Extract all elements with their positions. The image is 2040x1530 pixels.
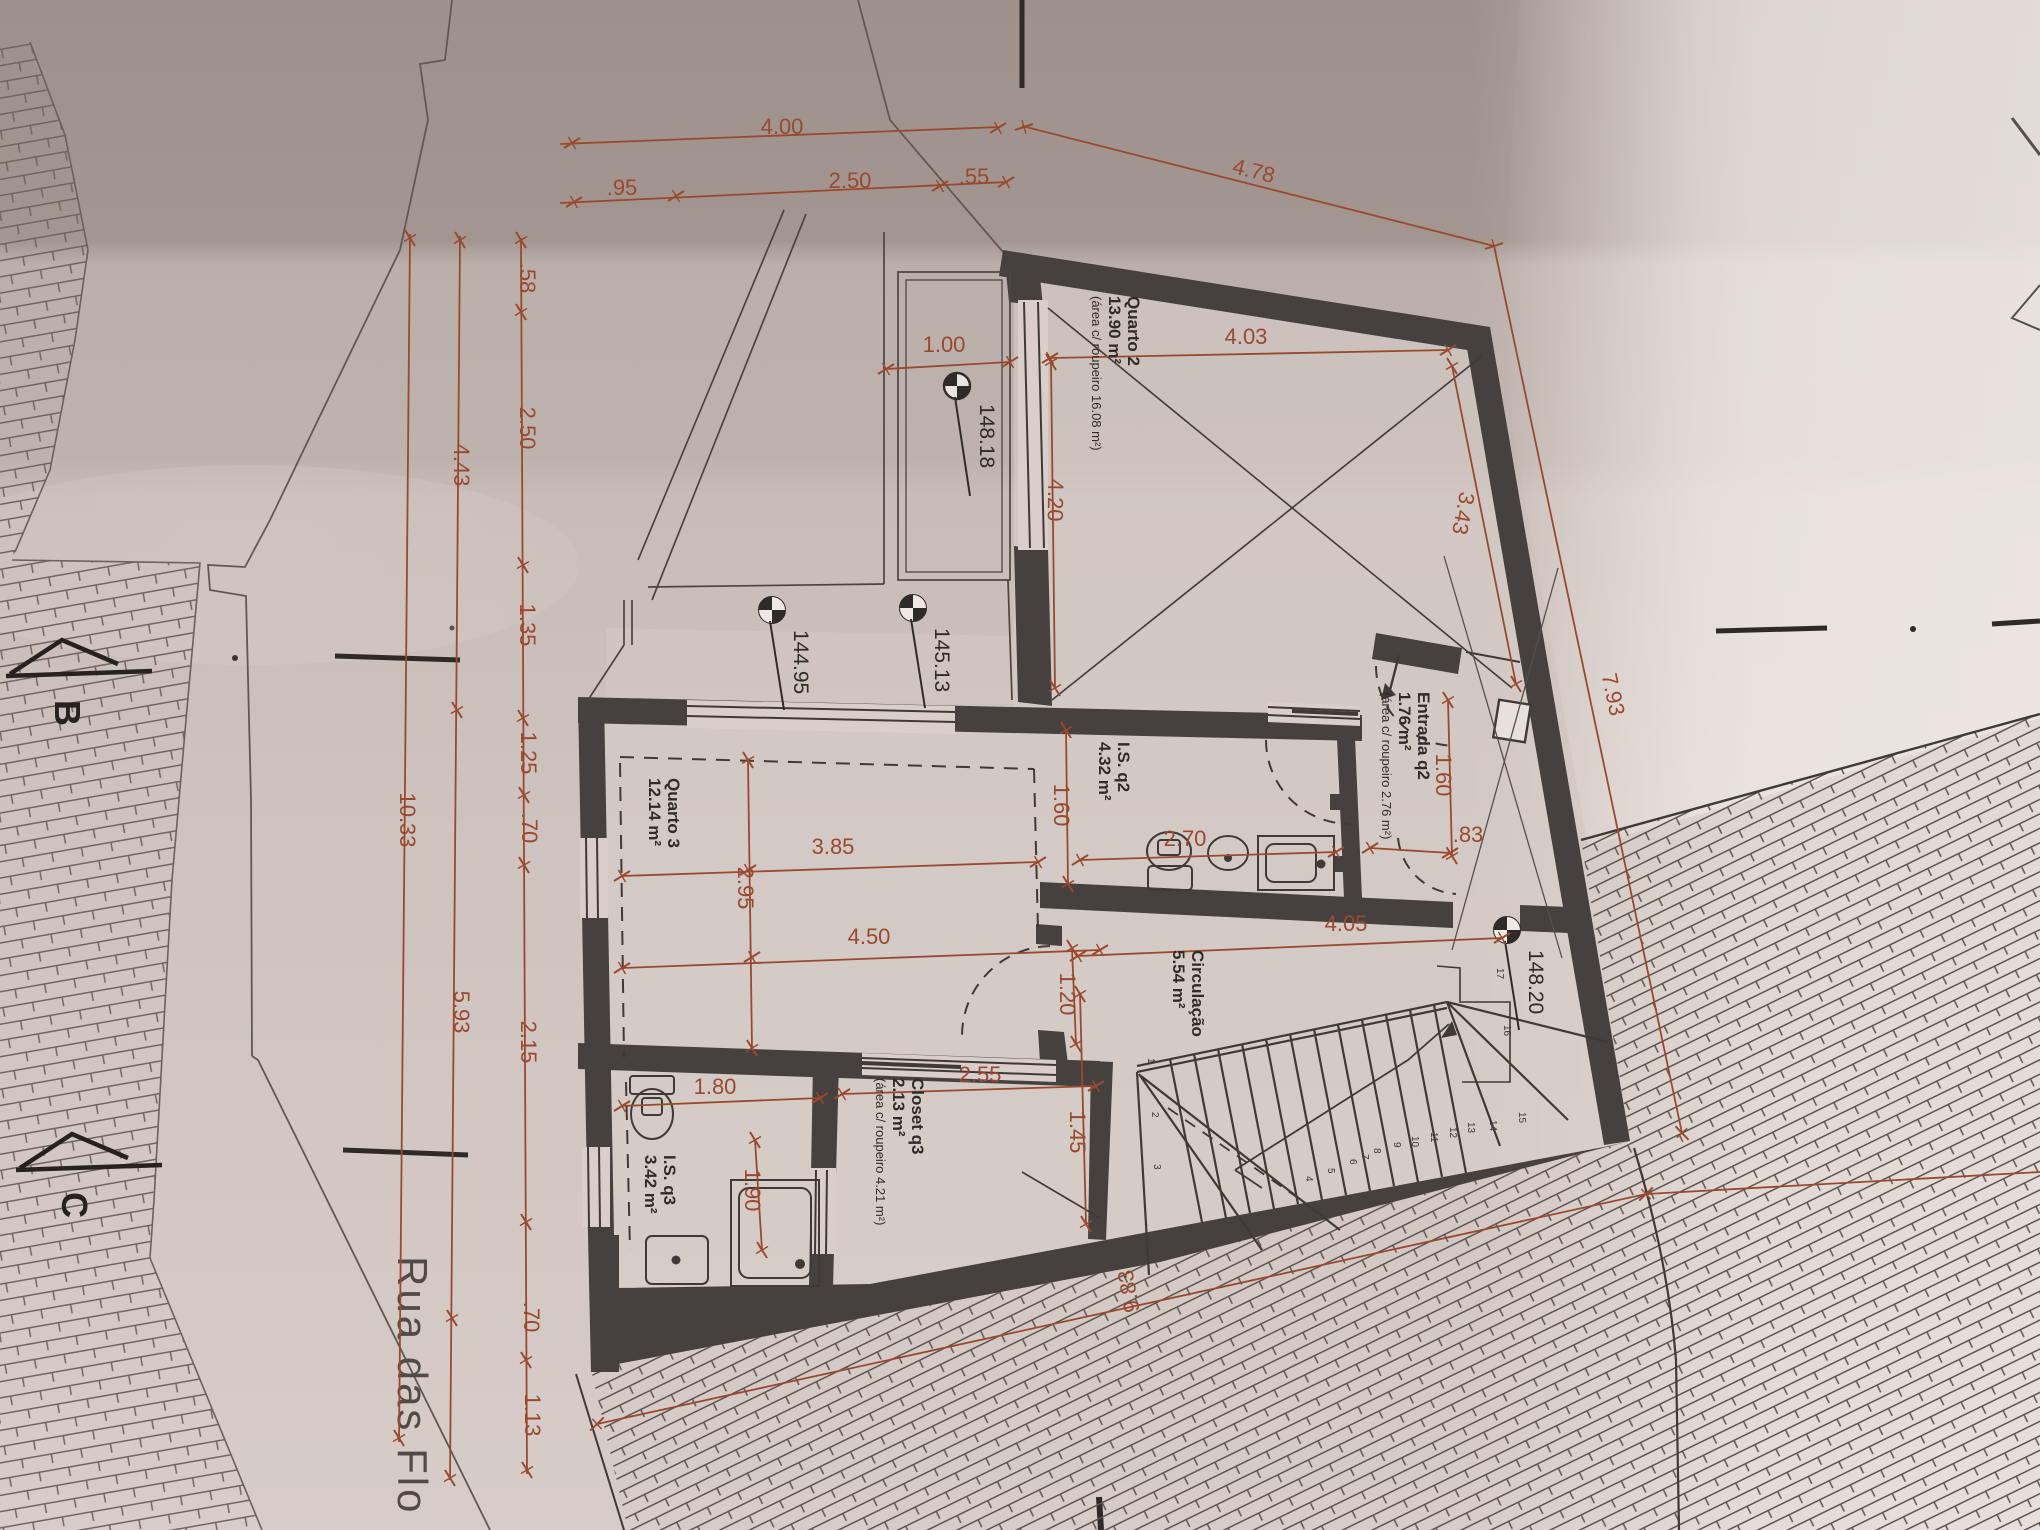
svg-text:2.70: 2.70 [1164,826,1207,851]
svg-text:4.20: 4.20 [1043,479,1069,522]
svg-text:.55: .55 [959,164,990,189]
svg-text:4: 4 [1303,1176,1314,1182]
svg-text:.95: .95 [607,175,638,200]
svg-text:1: 1 [1145,1058,1156,1064]
svg-text:148.18: 148.18 [975,404,998,468]
svg-text:2: 2 [1149,1112,1160,1118]
svg-text:2.95: 2.95 [733,867,758,910]
svg-text:6: 6 [1347,1159,1358,1165]
svg-text:Quarto 312.14 m²: Quarto 312.14 m² [645,778,683,848]
svg-text:1.90: 1.90 [740,1169,765,1212]
svg-text:10.33: 10.33 [395,792,420,847]
svg-text:1.60: 1.60 [1049,784,1074,827]
svg-text:2.50: 2.50 [829,168,872,193]
svg-text:2.15: 2.15 [516,1021,541,1064]
svg-text:5: 5 [1325,1168,1336,1174]
svg-text:1.20: 1.20 [1055,973,1080,1016]
svg-text:4.50: 4.50 [848,924,891,949]
svg-text:.70: .70 [519,1302,544,1333]
svg-text:B: B [47,700,88,726]
svg-text:17: 17 [1494,968,1505,980]
svg-text:1.80: 1.80 [694,1074,737,1099]
svg-text:.83: .83 [1453,822,1484,847]
svg-text:7: 7 [1359,1154,1370,1160]
svg-text:1.13: 1.13 [520,1394,545,1437]
svg-text:4.05: 4.05 [1325,911,1368,936]
svg-text:145.13: 145.13 [930,628,953,692]
svg-text:4.03: 4.03 [1225,324,1268,349]
svg-text:9: 9 [1391,1142,1402,1148]
svg-text:8: 8 [1371,1148,1382,1154]
svg-text:3: 3 [1151,1164,1162,1170]
svg-text:3.85: 3.85 [812,834,855,859]
svg-text:11: 11 [1428,1132,1439,1143]
svg-text:1.60: 1.60 [1431,754,1456,797]
svg-text:10: 10 [1409,1136,1420,1148]
svg-text:1.45: 1.45 [1065,1111,1090,1154]
svg-text:4.43: 4.43 [449,444,474,487]
svg-text:16: 16 [1501,1025,1512,1037]
svg-text:Rua das Flo: Rua das Flo [389,1256,436,1515]
svg-text:12: 12 [1447,1127,1458,1139]
svg-text:15: 15 [1516,1112,1527,1124]
svg-text:2.55: 2.55 [959,1062,1002,1087]
svg-text:.70: .70 [517,813,542,844]
svg-text:.58: .58 [515,263,540,294]
svg-text:13: 13 [1465,1122,1476,1134]
svg-text:14: 14 [1487,1120,1498,1132]
svg-text:5.93: 5.93 [449,991,474,1034]
svg-text:C: C [54,1192,95,1218]
svg-text:1.00: 1.00 [923,332,966,357]
svg-text:148.20: 148.20 [1524,950,1547,1014]
svg-text:1.35: 1.35 [515,604,540,647]
svg-text:4.00: 4.00 [761,114,804,139]
svg-text:2.50: 2.50 [515,407,540,450]
svg-text:144.95: 144.95 [789,630,812,694]
svg-text:1.25: 1.25 [516,732,541,775]
